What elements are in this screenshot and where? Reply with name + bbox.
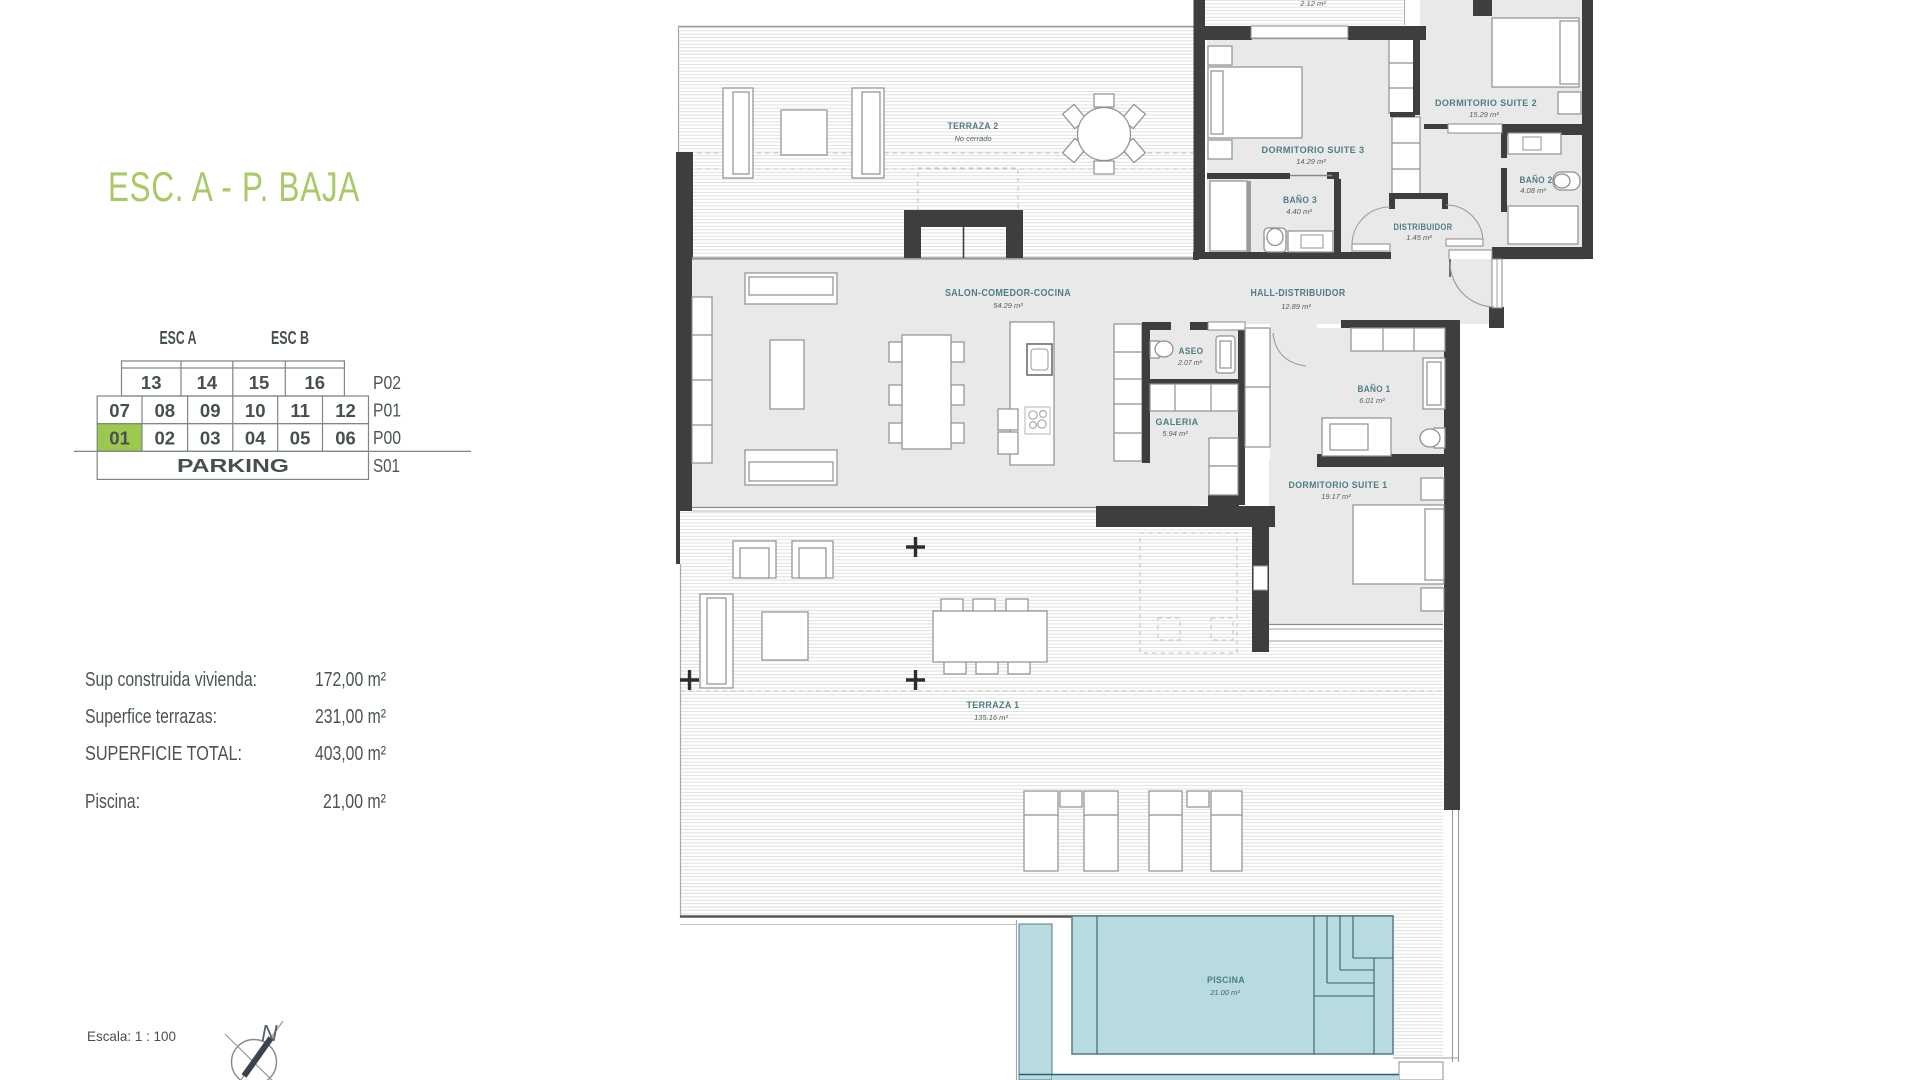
svg-text:403,00 m²: 403,00 m² bbox=[315, 743, 386, 765]
svg-text:08: 08 bbox=[155, 400, 176, 421]
svg-text:No cerrado: No cerrado bbox=[954, 134, 991, 143]
svg-text:TERRAZA 2: TERRAZA 2 bbox=[948, 121, 999, 132]
svg-text:ESC B: ESC B bbox=[271, 327, 309, 348]
svg-text:2.07 m²: 2.07 m² bbox=[1177, 360, 1202, 367]
svg-text:06: 06 bbox=[335, 428, 356, 449]
svg-text:07: 07 bbox=[109, 400, 130, 421]
svg-text:BAÑO 3: BAÑO 3 bbox=[1283, 195, 1317, 206]
svg-text:19.17 m²: 19.17 m² bbox=[1321, 492, 1351, 501]
svg-text:SUPERFICIE TOTAL:: SUPERFICIE TOTAL: bbox=[85, 743, 242, 765]
svg-text:12.89 m²: 12.89 m² bbox=[1281, 302, 1311, 311]
svg-text:2.12 m²: 2.12 m² bbox=[1299, 0, 1326, 8]
svg-text:ESC. A - P. BAJA: ESC. A - P. BAJA bbox=[108, 163, 360, 210]
svg-text:6.01 m²: 6.01 m² bbox=[1359, 396, 1385, 405]
svg-text:ESC A: ESC A bbox=[160, 327, 197, 348]
svg-text:BAÑO 1: BAÑO 1 bbox=[1358, 384, 1391, 395]
svg-text:15: 15 bbox=[249, 372, 270, 393]
svg-text:09: 09 bbox=[200, 400, 221, 421]
svg-text:1.45 m²: 1.45 m² bbox=[1406, 233, 1432, 242]
svg-text:ASEO: ASEO bbox=[1179, 346, 1204, 356]
svg-text:21.00 m²: 21.00 m² bbox=[1209, 988, 1240, 997]
svg-text:02: 02 bbox=[155, 428, 176, 449]
svg-text:Sup construida vivienda:: Sup construida vivienda: bbox=[85, 669, 257, 691]
svg-text:BAÑO 2: BAÑO 2 bbox=[1520, 175, 1553, 186]
svg-text:Superfice terrazas:: Superfice terrazas: bbox=[85, 706, 217, 728]
svg-text:TERRAZA 1: TERRAZA 1 bbox=[967, 700, 1020, 711]
svg-text:4.08 m²: 4.08 m² bbox=[1520, 186, 1546, 195]
svg-text:11: 11 bbox=[290, 400, 310, 421]
svg-text:14: 14 bbox=[197, 372, 218, 393]
svg-text:21,00 m²: 21,00 m² bbox=[323, 791, 386, 813]
svg-text:4.40 m²: 4.40 m² bbox=[1286, 207, 1312, 216]
svg-text:05: 05 bbox=[290, 428, 311, 449]
svg-text:P00: P00 bbox=[373, 427, 401, 448]
svg-text:DORMITORIO SUITE 2: DORMITORIO SUITE 2 bbox=[1435, 98, 1537, 109]
svg-text:P01: P01 bbox=[373, 400, 401, 421]
svg-text:P02: P02 bbox=[373, 372, 401, 393]
svg-text:12: 12 bbox=[335, 400, 356, 421]
svg-text:15.29 m²: 15.29 m² bbox=[1469, 110, 1499, 119]
svg-text:DISTRIBUIDOR: DISTRIBUIDOR bbox=[1394, 222, 1453, 232]
svg-text:03: 03 bbox=[200, 428, 221, 449]
svg-text:10: 10 bbox=[245, 400, 266, 421]
svg-text:04: 04 bbox=[245, 428, 266, 449]
svg-text:14.29 m²: 14.29 m² bbox=[1296, 157, 1326, 166]
svg-text:54.29 m²: 54.29 m² bbox=[993, 301, 1023, 310]
svg-text:Escala: 1 : 100: Escala: 1 : 100 bbox=[87, 1029, 176, 1044]
svg-text:13: 13 bbox=[141, 372, 162, 393]
svg-text:GALERIA: GALERIA bbox=[1156, 417, 1199, 428]
svg-text:HALL-DISTRIBUIDOR: HALL-DISTRIBUIDOR bbox=[1251, 288, 1346, 299]
svg-text:SALON-COMEDOR-COCINA: SALON-COMEDOR-COCINA bbox=[945, 288, 1071, 299]
svg-text:DORMITORIO SUITE 1: DORMITORIO SUITE 1 bbox=[1289, 480, 1388, 491]
svg-text:PARKING: PARKING bbox=[177, 456, 289, 476]
svg-text:DORMITORIO SUITE 3: DORMITORIO SUITE 3 bbox=[1262, 145, 1365, 156]
svg-text:231,00 m²: 231,00 m² bbox=[315, 706, 386, 728]
svg-text:PISCINA: PISCINA bbox=[1207, 975, 1245, 986]
svg-text:5.94 m²: 5.94 m² bbox=[1162, 429, 1188, 438]
svg-text:01: 01 bbox=[109, 428, 130, 449]
svg-text:S01: S01 bbox=[373, 455, 400, 476]
svg-text:16: 16 bbox=[305, 372, 326, 393]
svg-text:172,00 m²: 172,00 m² bbox=[315, 669, 386, 691]
svg-text:135.16 m²: 135.16 m² bbox=[974, 713, 1008, 722]
svg-text:Piscina:: Piscina: bbox=[85, 791, 140, 813]
svg-text:N: N bbox=[261, 1020, 278, 1046]
